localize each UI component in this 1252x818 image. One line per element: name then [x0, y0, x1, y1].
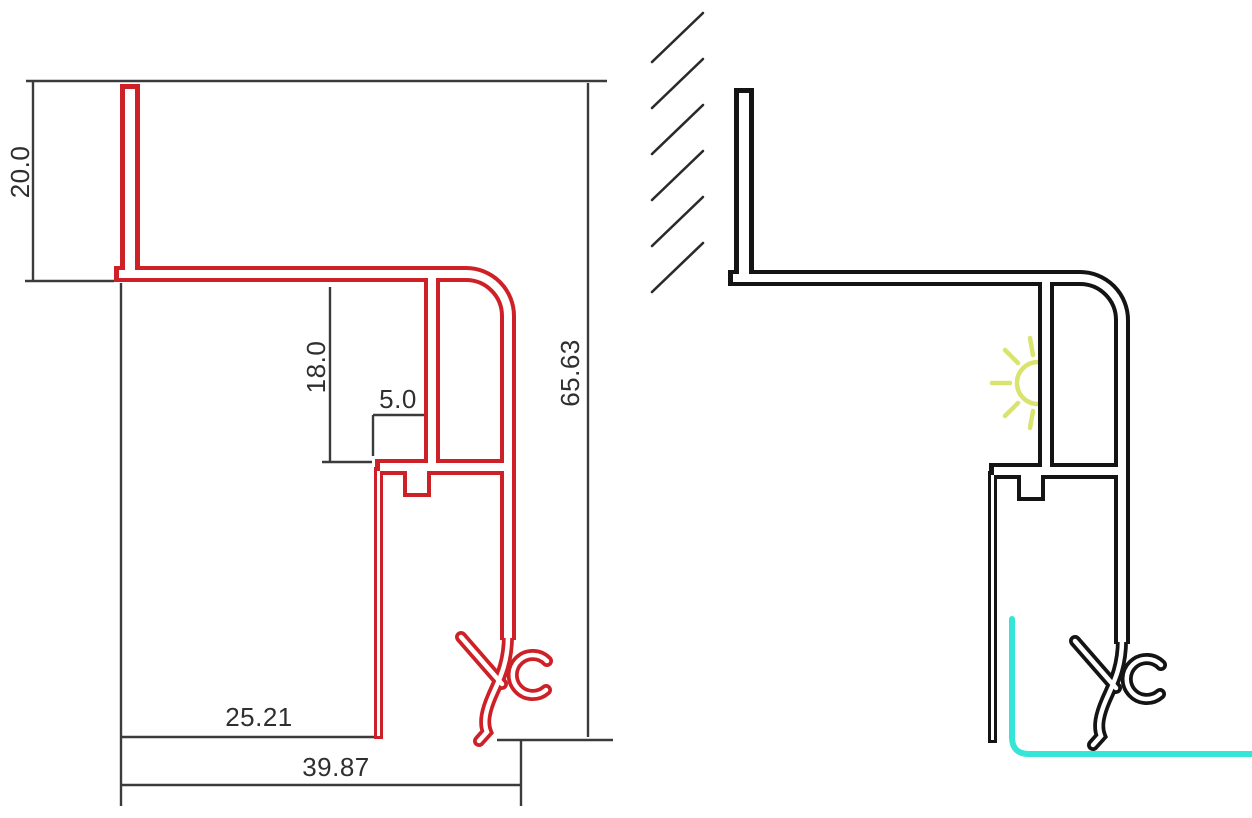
dim-label-body-width: 25.21 — [225, 702, 293, 732]
dim-label-ledge-width: 5.0 — [379, 384, 417, 414]
drawing-canvas: 20.0 18.0 5.0 65.63 25.21 39.87 — [0, 0, 1252, 818]
profile-cross-section-black — [728, 88, 1161, 745]
hatch-line — [652, 13, 703, 62]
technical-drawing: 20.0 18.0 5.0 65.63 25.21 39.87 — [0, 0, 1252, 818]
dim-label-flange-height: 20.0 — [5, 146, 35, 199]
dim-label-chamber-depth: 18.0 — [301, 341, 331, 394]
hatch-line — [652, 197, 703, 246]
light-ray — [1030, 411, 1033, 428]
hatch-line — [652, 151, 703, 200]
light-ray — [1030, 338, 1033, 355]
hatch-line — [652, 243, 703, 292]
light-dome — [1017, 362, 1038, 404]
hatch-line — [652, 59, 703, 108]
light-ray — [1005, 403, 1018, 416]
dim-label-overall-height: 65.63 — [555, 339, 585, 407]
light-ray — [1005, 350, 1018, 363]
hatch-line — [652, 105, 703, 154]
dim-label-overall-width: 39.87 — [302, 752, 370, 782]
light-emission-icon — [992, 338, 1038, 428]
wall-hatching-icon — [652, 13, 703, 292]
